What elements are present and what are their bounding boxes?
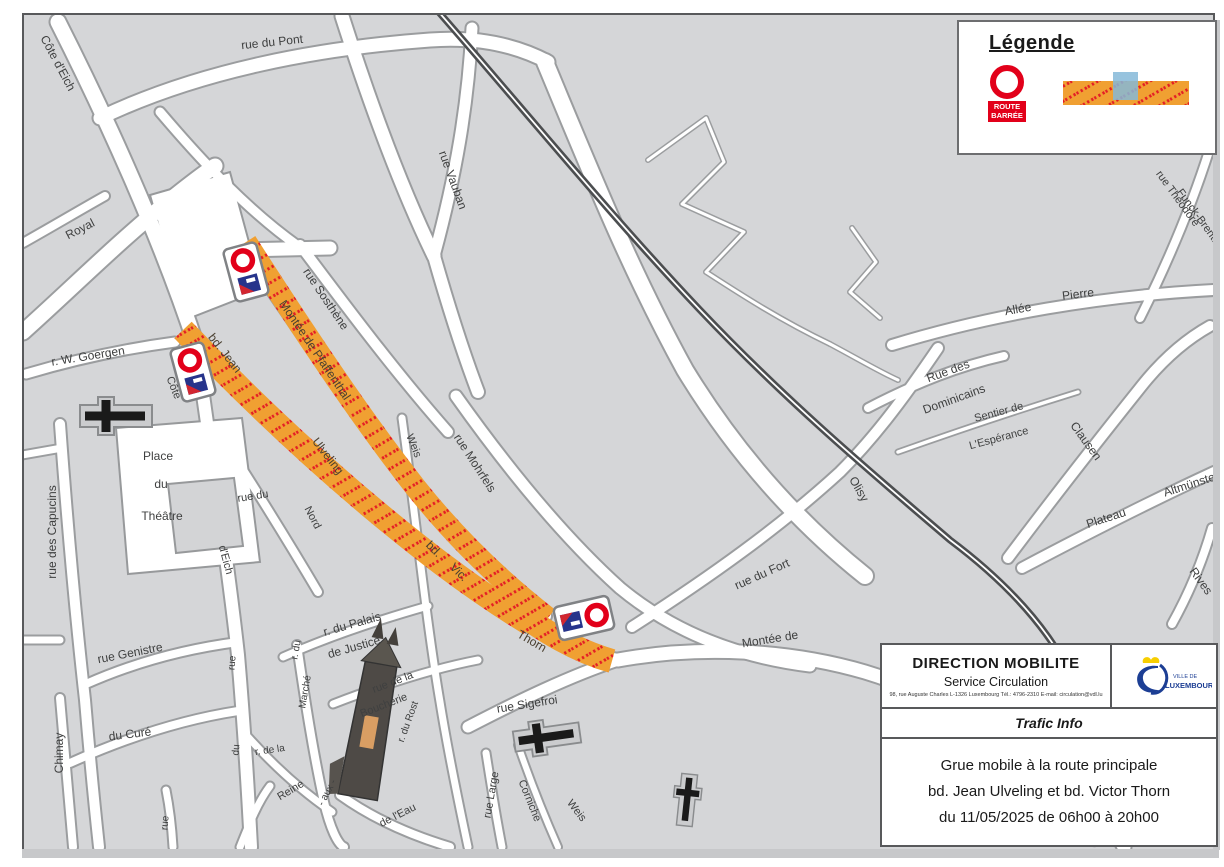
vdl-logo: VILLE DE LUXEMBOURG (1116, 653, 1212, 699)
closure-sample (1061, 69, 1193, 118)
vdl-logo-cell: VILLE DE LUXEMBOURG (1110, 645, 1216, 707)
message-line-1: Grue mobile à la route principale (941, 753, 1158, 779)
route-barree-circle-icon (990, 65, 1024, 99)
city-block (168, 478, 243, 553)
traffic-message: Grue mobile à la route principale bd. Je… (882, 739, 1216, 845)
org-title: DIRECTION MOBILITE (912, 655, 1079, 672)
route-barree-legend-icon: ROUTE BARRÉE (981, 65, 1033, 122)
closure-sample-svg (1061, 69, 1193, 113)
logo-crown (1143, 657, 1160, 663)
route-barree-label: ROUTE BARRÉE (988, 101, 1026, 122)
section-title: Trafic Info (1015, 715, 1082, 731)
message-line-2: bd. Jean Ulveling et bd. Victor Thorn (928, 779, 1170, 805)
logo-text-small: VILLE DE (1173, 674, 1197, 680)
logo-lion (1137, 666, 1159, 693)
message-line-3: du 11/05/2025 de 06h00 à 20h00 (939, 805, 1159, 831)
route-barree-label-line2: BARRÉE (991, 112, 1023, 121)
traffic-map-page: Côte d'Eichrue du PontRoyalrue Vaubanr. … (0, 0, 1224, 867)
map-edge-shadow-bottom (22, 849, 1219, 858)
dept-title: Service Circulation (944, 675, 1048, 689)
legend-title: Légende (989, 32, 1215, 55)
crane-position-square (1113, 72, 1138, 100)
logo-text-big: LUXEMBOURG (1165, 681, 1212, 690)
legend-box: Légende ROUTE BARRÉE (957, 20, 1217, 155)
traffic-info-box: DIRECTION MOBILITE Service Circulation 9… (880, 643, 1218, 847)
contact-line: 98, rue Auguste Charles L-1326 Luxembour… (889, 692, 1102, 698)
